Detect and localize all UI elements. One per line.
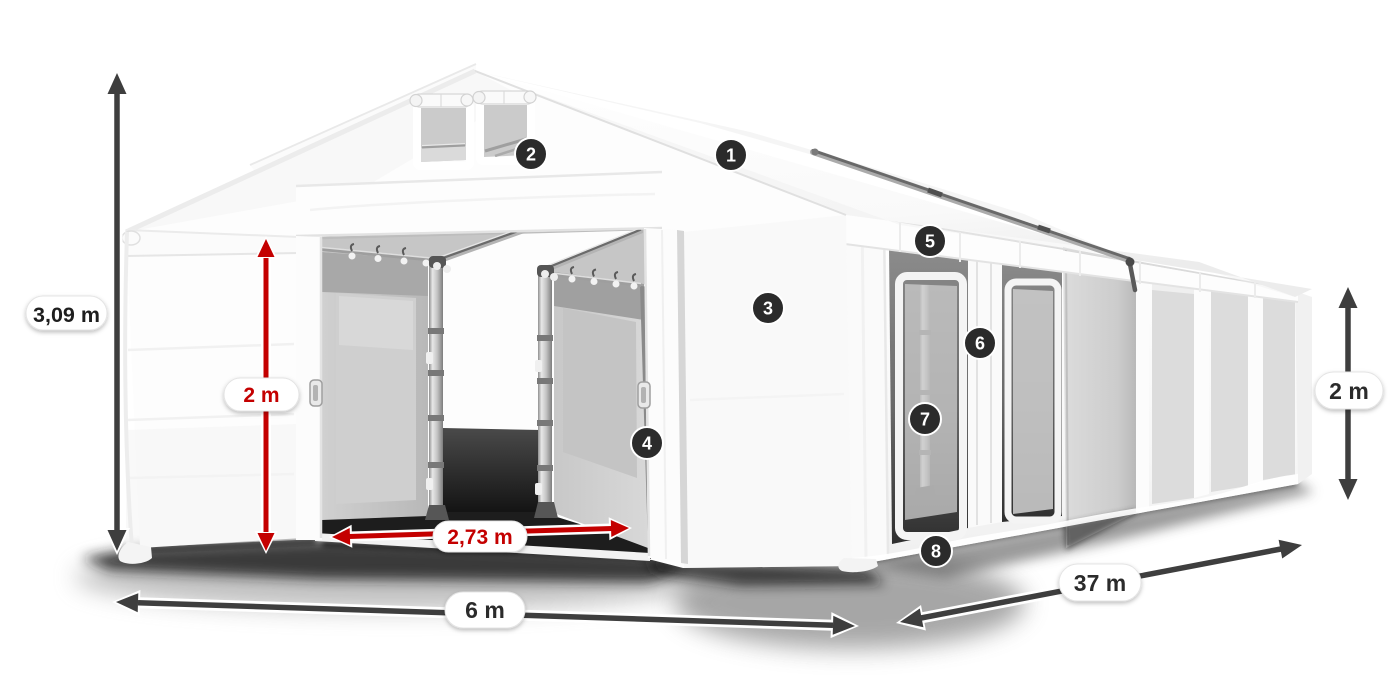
svg-text:2 m: 2 m	[243, 384, 279, 407]
svg-text:5: 5	[925, 232, 935, 252]
svg-text:3: 3	[763, 299, 773, 319]
svg-text:7: 7	[920, 410, 930, 430]
svg-text:6: 6	[975, 334, 985, 354]
svg-text:6 m: 6 m	[465, 597, 505, 623]
svg-text:2: 2	[526, 145, 536, 165]
svg-text:37 m: 37 m	[1074, 570, 1126, 596]
svg-text:4: 4	[642, 434, 652, 454]
svg-text:2 m: 2 m	[1329, 378, 1369, 404]
svg-text:8: 8	[931, 542, 941, 562]
svg-text:1: 1	[726, 146, 736, 166]
svg-text:3,09 m: 3,09 m	[33, 303, 100, 327]
svg-text:2,73 m: 2,73 m	[447, 526, 512, 549]
